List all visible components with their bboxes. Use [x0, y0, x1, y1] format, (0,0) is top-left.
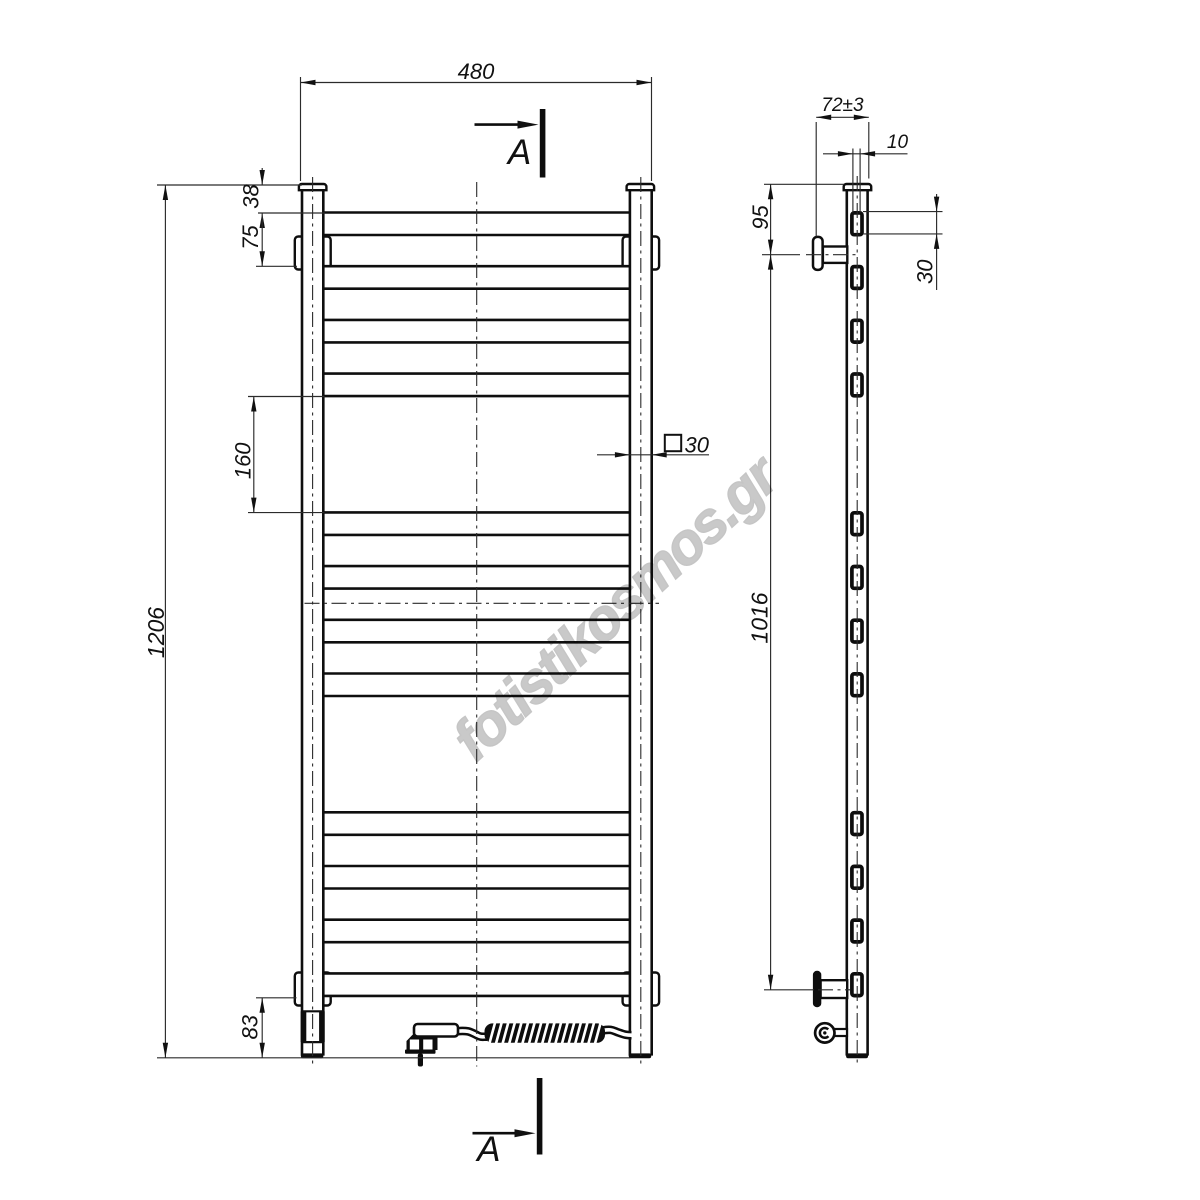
- svg-text:480: 480: [458, 59, 495, 84]
- svg-text:A: A: [506, 133, 531, 172]
- svg-text:30: 30: [913, 259, 938, 284]
- svg-text:75: 75: [238, 225, 263, 250]
- svg-text:72±3: 72±3: [821, 95, 864, 116]
- svg-text:1016: 1016: [747, 592, 773, 643]
- svg-text:10: 10: [887, 132, 909, 153]
- svg-text:160: 160: [231, 442, 256, 479]
- svg-text:30: 30: [685, 433, 710, 458]
- svg-text:83: 83: [238, 1014, 263, 1039]
- svg-text:38: 38: [239, 184, 264, 209]
- svg-text:1206: 1206: [143, 607, 169, 658]
- svg-text:A: A: [475, 1130, 500, 1169]
- svg-text:95: 95: [748, 205, 773, 230]
